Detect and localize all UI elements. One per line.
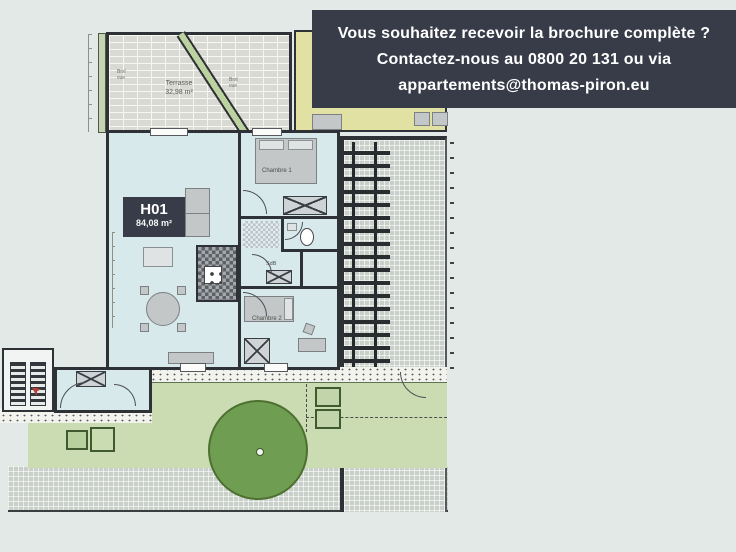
dining-chair: [177, 323, 186, 332]
unit-code: H01: [123, 201, 185, 218]
hallway-floor: [243, 221, 279, 248]
sofa: [185, 188, 210, 237]
view-annotation-left: Brxl vue: [117, 69, 126, 81]
stove-icon: [204, 266, 222, 284]
window: [150, 128, 188, 136]
dimension-line-living: [112, 232, 115, 328]
pillow: [284, 298, 293, 320]
bench-square-bottom: [315, 409, 341, 429]
pillow: [288, 140, 313, 150]
terrace-name: Terrasse: [166, 80, 193, 87]
banner-question: Vous souhaitez recevoir la brochure comp…: [312, 21, 736, 47]
wall-sdb-bedroom2: [241, 286, 337, 289]
floor-plan-page: Terrasse 32,98 m² Brxl vue Brxl vue H01 …: [0, 0, 736, 552]
planter-square-small: [66, 430, 88, 450]
facade-marker-row: [344, 142, 390, 374]
dining-table: [146, 292, 180, 326]
bedroom1-label: Chambre 1: [262, 168, 292, 175]
dimension-line-left: [88, 34, 92, 132]
window: [180, 363, 206, 372]
wardrobe-bedroom2: [244, 338, 270, 364]
stairs-icon: [10, 362, 26, 406]
coffee-table: [143, 247, 173, 267]
window: [264, 363, 288, 372]
dining-chair: [177, 286, 186, 295]
terrace: Terrasse 32,98 m² Brxl vue Brxl vue: [106, 32, 292, 134]
dining-chair: [140, 286, 149, 295]
dimension-ticks-right: [450, 142, 454, 380]
window: [252, 128, 282, 136]
brochure-banner: Vous souhaitez recevoir la brochure comp…: [312, 10, 736, 108]
toilet-icon: [300, 228, 314, 246]
pillow: [259, 140, 284, 150]
wardrobe-bedroom1: [283, 196, 327, 215]
stairwell: [2, 348, 54, 412]
wall-wc-bottom: [281, 249, 337, 252]
wall-living-bedrooms: [238, 132, 241, 368]
desk-bedroom2: [298, 338, 326, 352]
bathroom-label: SdB: [266, 261, 276, 268]
banner-phone: Contactez-nous au 0800 20 131 ou via: [312, 47, 736, 73]
bench-square-top: [315, 387, 341, 407]
wall-wc-left: [281, 219, 284, 251]
bedroom2-label: Chambre 2: [252, 316, 282, 323]
wall-sdb-right: [300, 251, 303, 288]
wall-bedroom1-wc: [241, 216, 337, 219]
view-annotation-right: Brxl vue: [229, 77, 238, 89]
contact-email-text: appartements@thomas-piron.eu: [312, 73, 736, 99]
unit-label-box: H01 84,08 m²: [123, 197, 185, 237]
tree-icon: [208, 400, 308, 500]
planter-square-large: [90, 427, 115, 452]
terrace-area: 32,98 m²: [165, 89, 193, 96]
dining-chair: [140, 323, 149, 332]
unit-area: 84,08 m²: [123, 218, 185, 228]
terrace-planter-edge: [98, 33, 106, 133]
